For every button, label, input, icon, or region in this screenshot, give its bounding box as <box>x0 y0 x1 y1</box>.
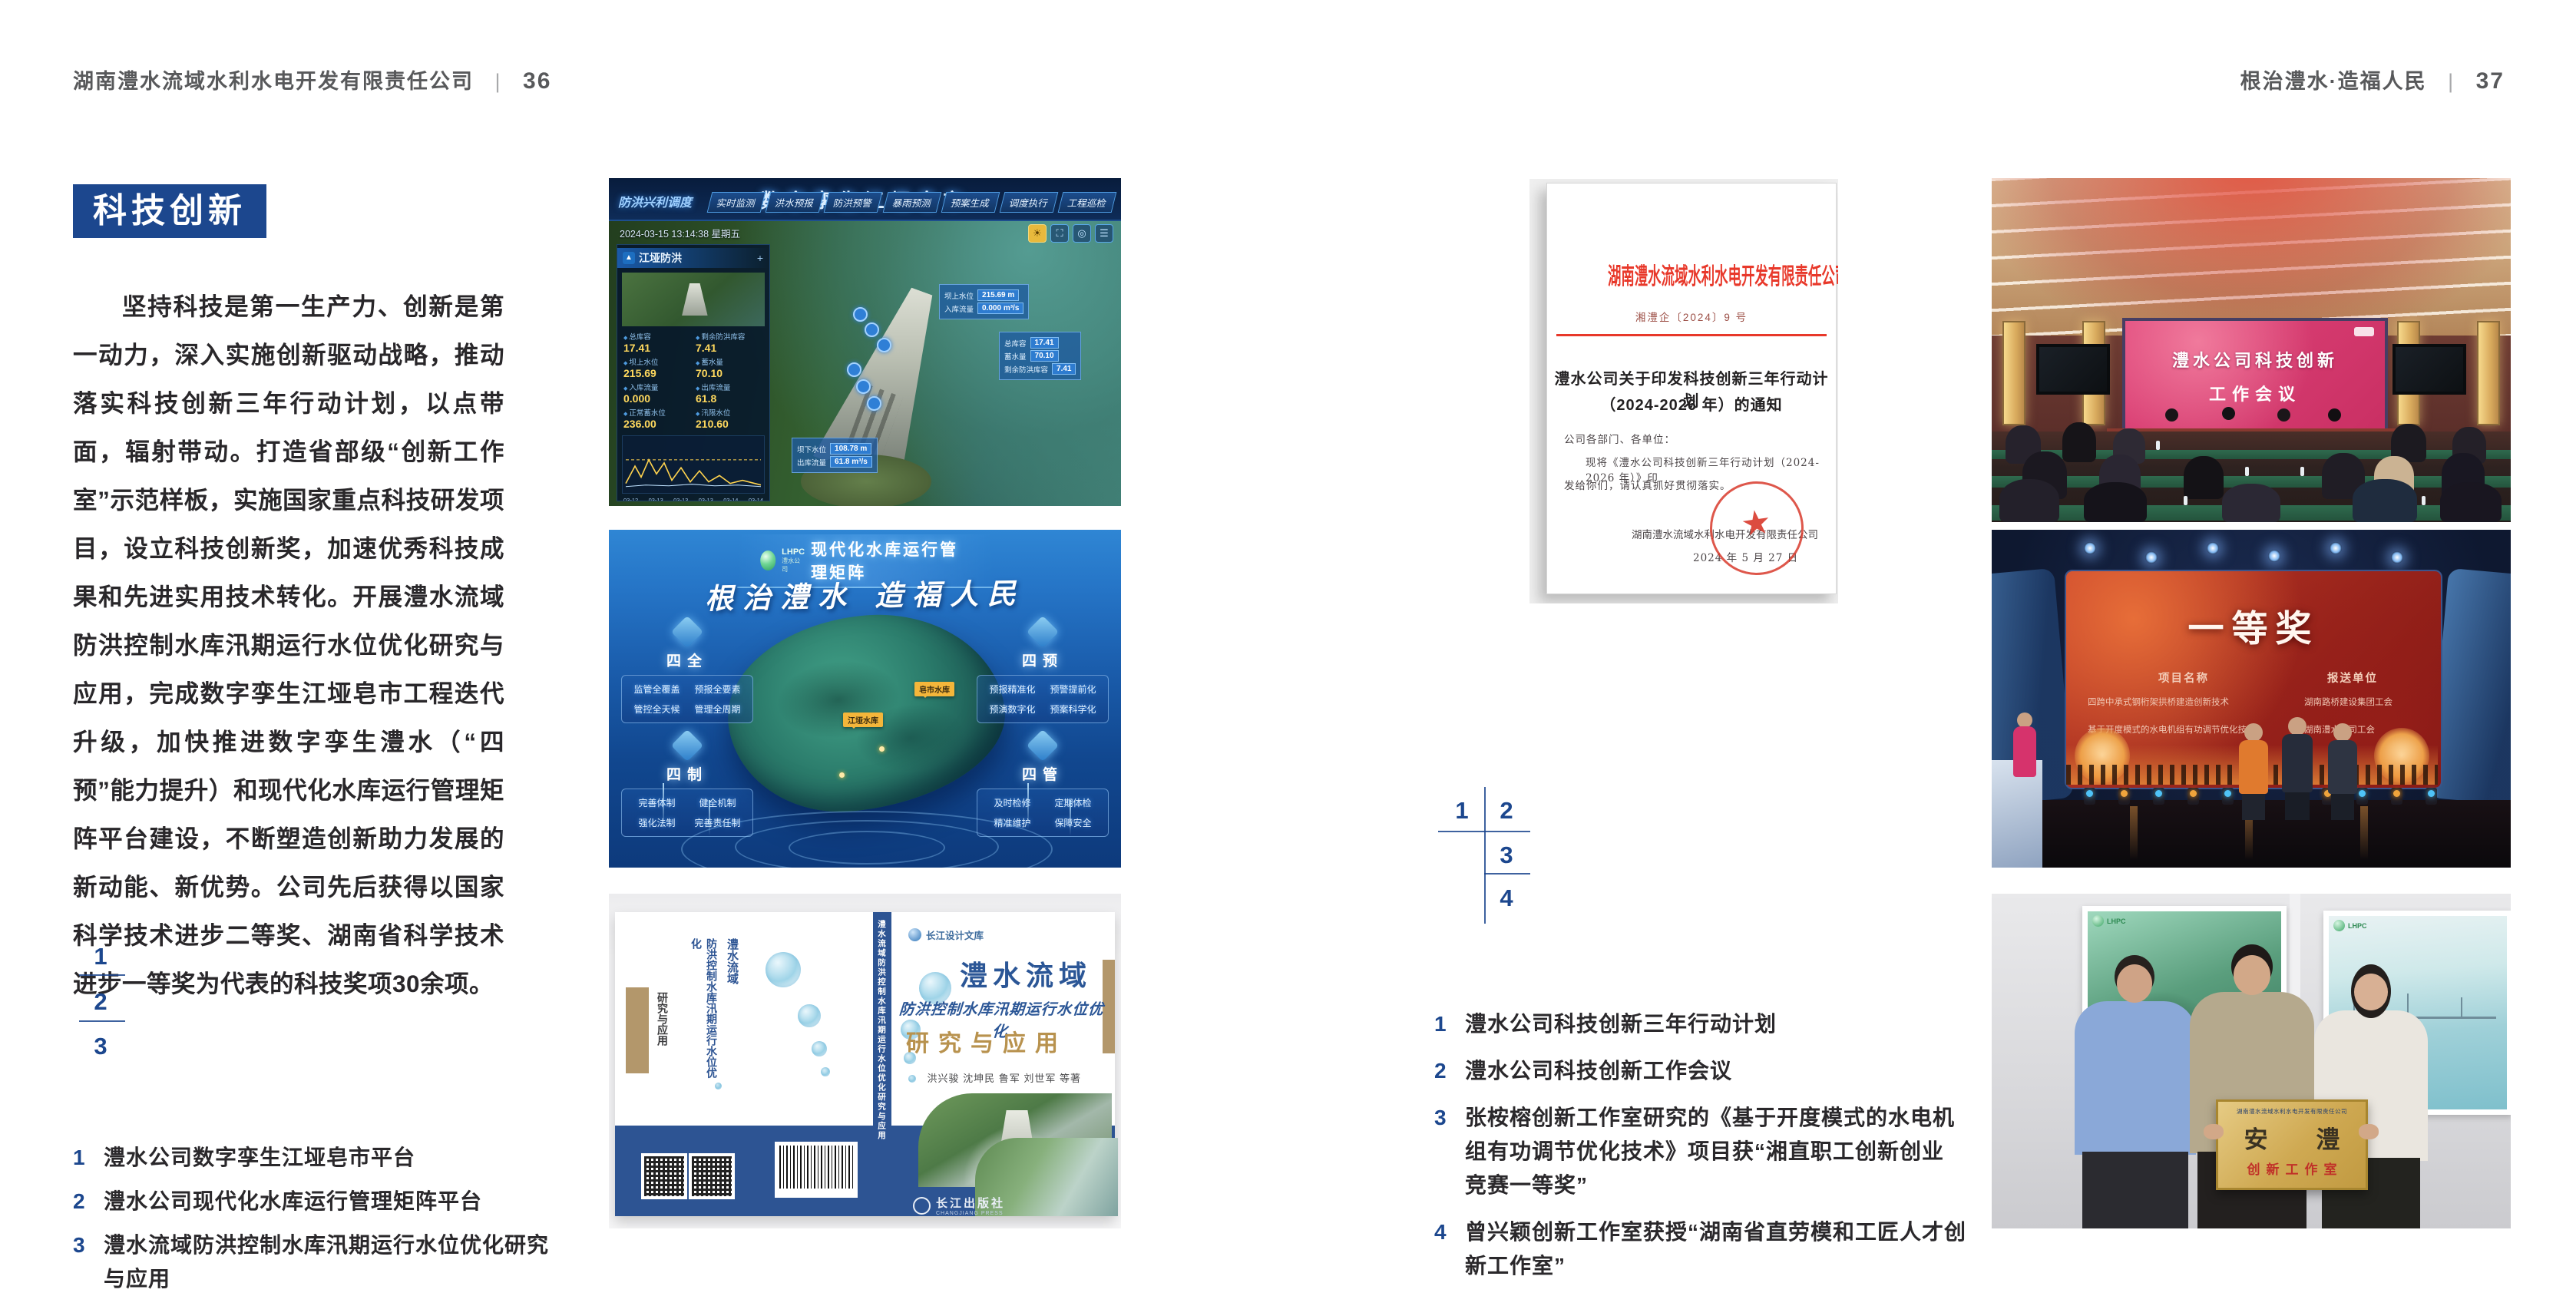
stage-light <box>2330 542 2342 554</box>
wall-light-column <box>2002 321 2025 425</box>
stage-light <box>2207 542 2219 554</box>
series-logo-icon <box>908 928 921 941</box>
caption-row: 2 澧水公司现代化水库运行管理矩阵平台 <box>73 1185 549 1218</box>
index-grid-line <box>1484 873 1530 875</box>
water-bubble <box>812 1041 827 1056</box>
figure-index-4: 4 <box>1491 884 1522 912</box>
water-bubble <box>715 1083 722 1089</box>
floor-light-fixture <box>2426 788 2437 805</box>
caption-row: 1 澧水公司数字孪生江垭皂市平台 <box>73 1141 549 1175</box>
figure-index-2: 2 <box>85 988 116 1016</box>
index-grid-line <box>1438 831 1530 832</box>
callout-value: 61.8 m³/s <box>830 456 872 468</box>
quadrant-siyu: 四预 预报精准化预警提前化 预演数字化预案科学化 <box>977 620 1109 723</box>
light-pillar <box>663 783 664 829</box>
figure-matrix-platform: LHPC 澧水公司 现代化水库运行管理矩阵 根治澧水 造福人民 皂市水库 江垭水… <box>609 530 1121 868</box>
lhpc-logo-icon <box>760 551 775 570</box>
header-divider: | <box>495 70 502 93</box>
poster-logo: LHPC <box>2333 920 2367 931</box>
sensor-marker <box>877 338 891 352</box>
publisher-logo-icon <box>913 1197 931 1215</box>
floor-light-fixture <box>2391 788 2402 805</box>
alarm-icon: ☀ <box>1028 224 1047 243</box>
caption-number: 2 <box>73 1185 104 1218</box>
figure-index-1: 1 <box>1447 797 1477 825</box>
company-name: 湖南澧水流域水利水电开发有限责任公司 <box>73 70 474 93</box>
seal-star-icon: ★ <box>1709 498 1803 549</box>
sensor-marker <box>847 362 861 377</box>
right-captions: 1 澧水公司科技创新三年行动计划 2 澧水公司科技创新工作会议 3 张桉榕创新工… <box>1434 1007 1979 1293</box>
logo-subtext: 澧水公司 <box>782 557 805 574</box>
map-label-jiangya: 江垭水库 <box>843 713 883 727</box>
tab-rain-forecast: 暴雨预测 <box>883 192 942 213</box>
index-divider <box>79 974 125 976</box>
callout-label: 总库容 <box>1004 338 1027 349</box>
stat-item: 汛限水位210.60 <box>696 407 763 430</box>
figure-digital-twin-platform: 坝上水位215.69 m 入库流量0.000 m³/s 总库容17.41 蓄水量… <box>609 178 1121 506</box>
person-torso <box>2075 1001 2196 1155</box>
quadrant-title: 四制 <box>621 763 753 784</box>
tab-dispatch-exec: 调度执行 <box>1000 192 1059 213</box>
callout-label: 剩余防洪库容 <box>1004 364 1048 375</box>
audience-silhouette <box>2222 484 2280 522</box>
sensor-marker <box>865 322 879 337</box>
caption-number: 2 <box>1434 1054 1465 1088</box>
intro-paragraph: 坚持科技是第一生产力、创新是第一动力，深入实施创新驱动战略，推动落实科技创新三年… <box>73 283 504 1008</box>
figure-book-cover: 澧水流域 防洪控制水库汛期运行水位优化 研究与应用 澧水流域防洪控制水库汛期运行… <box>609 894 1121 1228</box>
book-title-line1: 澧水流域 <box>960 954 1092 994</box>
audience-silhouette <box>1999 479 2059 522</box>
qr-code <box>641 1153 687 1199</box>
isbn-barcode <box>775 1142 858 1198</box>
quadrant-title: 四全 <box>621 650 753 670</box>
tab-flood-warning: 防洪预警 <box>824 192 883 213</box>
quadrant-siquan: 四全 监管全覆盖预报全要素 管控全天候管理全周期 <box>621 620 753 723</box>
stage-light <box>2084 542 2096 554</box>
floor-reflection <box>2360 806 2368 860</box>
awardee-orange-silhouette <box>2239 723 2268 820</box>
callout-label: 入库流量 <box>944 303 974 314</box>
sail-icon: ▲ <box>623 252 635 264</box>
person-face <box>2234 955 2270 995</box>
caption-number: 3 <box>73 1228 104 1296</box>
caption-text: 张桉榕创新工作室研究的《基于开度模式的水电机组有功调节优化技术》项目获“湘直职工… <box>1465 1101 1964 1202</box>
water-bubble <box>766 952 801 987</box>
reservoir-capacity-callout: 总库容17.41 蓄水量70.10 剩余防洪库容7.41 <box>999 332 1081 380</box>
water-bubble <box>821 1067 830 1076</box>
sensor-marker <box>856 379 871 394</box>
callout-label: 出库流量 <box>797 457 826 468</box>
flood-stats-grid: 总库容17.41 剩余防洪库容7.41 坝上水位215.69 蓄水量70.10 … <box>617 331 769 432</box>
index-grid-line <box>1484 787 1486 924</box>
tab-realtime-monitor: 实时监测 <box>707 192 766 213</box>
figure-official-document: 湖南澧水流域水利水电开发有限责任公司文件 湘澧企〔2024〕9 号 澧水公司关于… <box>1529 179 1838 603</box>
figure-index-1: 1 <box>85 943 116 970</box>
quadrant-title: 四管 <box>977 763 1109 784</box>
meeting-led-screen: 澧水公司科技创新 工作会议 <box>2122 318 2388 439</box>
quadrant-icon <box>671 729 703 762</box>
lhpc-logo-icon <box>2092 915 2104 927</box>
audience-silhouette <box>2353 479 2417 522</box>
award-col2-header: 报送单位 <box>2327 670 2378 686</box>
plaque-subtitle: 创新工作室 <box>2218 1159 2366 1178</box>
sensor-marker <box>853 307 868 322</box>
back-title-line2: 防洪控制水库汛期运行水位优化 <box>686 938 719 1084</box>
document-page: 湖南澧水流域水利水电开发有限责任公司文件 湘澧企〔2024〕9 号 澧水公司关于… <box>1546 183 1837 594</box>
layers-icon: ⛶ <box>1050 224 1069 243</box>
index-divider <box>79 1020 125 1022</box>
caption-row: 2 澧水公司科技创新工作会议 <box>1434 1054 1979 1088</box>
dashboard-timestamp: 2024-03-15 13:14:38 星期五 <box>620 226 740 240</box>
book-authors: 洪兴骏 沈坤民 鲁军 刘世军 等著 <box>928 1070 1081 1085</box>
left-captions: 1 澧水公司数字孪生江垭皂市平台 2 澧水公司现代化水库运行管理矩阵平台 3 澧… <box>73 1141 549 1306</box>
caption-text: 澧水公司现代化水库运行管理矩阵平台 <box>104 1185 482 1218</box>
page-number-right: 37 <box>2476 68 2505 94</box>
poster-logo-text: LHPC <box>2348 922 2367 930</box>
water-bottle <box>2422 496 2426 505</box>
matrix-slogan: 根治澧水 造福人民 <box>609 568 1121 619</box>
callout-value: 108.78 m <box>830 443 871 455</box>
screen-title-line1: 澧水公司科技创新 <box>2125 347 2385 372</box>
stat-item: 正常蓄水位236.00 <box>623 407 691 430</box>
water-bottle <box>2245 467 2249 476</box>
map-label-zaoshi: 皂市水库 <box>914 682 954 696</box>
section-badge: 科技创新 <box>73 184 266 238</box>
document-red-rule <box>1556 334 1827 336</box>
publisher-name: 长江出版社 <box>936 1195 1005 1211</box>
logo-text: LHPC <box>782 548 805 557</box>
left-tab-group: 实时监测 洪水预报 防洪预警 <box>707 192 882 213</box>
menu-icon: ☰ <box>1095 224 1113 243</box>
stage-light <box>2268 550 2280 562</box>
dam-camera-thumbnail <box>622 273 765 326</box>
right-tab-group: 暴雨预测 预案生成 调度执行 工程巡检 <box>883 192 1116 213</box>
hand <box>2359 1124 2379 1139</box>
page-number-left: 36 <box>523 68 551 94</box>
chart-x-axis-labels: 03-1203-1303-1303-1303-1403-14 <box>617 497 769 501</box>
book-spine: 澧水流域防洪控制水库汛期运行水位优化研究与应用 <box>873 912 891 1216</box>
document-salutation: 公司各部门、各单位： <box>1564 431 1675 446</box>
map-station-dot <box>879 746 885 752</box>
caption-number: 3 <box>1434 1101 1465 1202</box>
caption-row: 3 澧水流域防洪控制水库汛期运行水位优化研究与应用 <box>73 1228 549 1296</box>
flood-panel-header: ▲ 江垭防洪 + <box>617 248 769 268</box>
caption-text: 曾兴颖创新工作室获授“湖南省直劳模和工匠人才创新工作室” <box>1465 1215 1979 1283</box>
hand <box>2204 1124 2224 1139</box>
callout-label: 坝下水位 <box>797 444 826 455</box>
caption-row: 3 张桉榕创新工作室研究的《基于开度模式的水电机组有功调节优化技术》项目获“湘直… <box>1434 1101 1979 1202</box>
callout-value: 17.41 <box>1030 337 1059 349</box>
floor-light-fixture <box>2153 788 2164 805</box>
back-title-line3: 研究与应用 <box>655 992 670 1076</box>
caption-row: 4 曾兴颖创新工作室获授“湖南省直劳模和工匠人才创新工作室” <box>1434 1215 1979 1283</box>
toolbar-icons: ☀ ⛶ ◎ ☰ <box>1028 224 1113 243</box>
expand-icon: + <box>757 248 763 268</box>
stat-item: 总库容17.41 <box>623 331 691 354</box>
back-title-line1: 澧水流域 <box>724 938 740 1115</box>
speaker-head <box>2277 408 2290 422</box>
audience-silhouette <box>2084 482 2147 522</box>
callout-label: 坝上水位 <box>944 290 974 301</box>
caption-text: 澧水公司数字孪生江垭皂市平台 <box>104 1141 415 1175</box>
floor-reflection <box>2130 806 2138 860</box>
screen-logo <box>2354 327 2374 336</box>
ripple-ring <box>789 831 945 865</box>
figure-group-photo: LHPC LHPC <box>1992 894 2511 1228</box>
document-body-line2: 发给你们，请认真抓好贯彻落实。 <box>1564 477 1731 492</box>
award-title: 一等奖 <box>2066 599 2441 652</box>
quadrant-icon <box>671 616 703 648</box>
speaker-head <box>2222 407 2235 420</box>
floor-light-fixture <box>2187 788 2199 805</box>
left-data-panel: ▲ 江垭防洪 + 总库容17.41 剩余防洪库容7.41 坝上水位215.69 … <box>617 244 770 501</box>
flood-panel-title: 江垭防洪 <box>639 252 682 264</box>
caption-number: 1 <box>1434 1007 1465 1041</box>
callout-value: 215.69 m <box>977 289 1019 301</box>
header-divider: | <box>2448 70 2455 93</box>
quadrant-sizhi: 四制 完善体制健全机制 强化法制完善责任制 <box>621 734 753 837</box>
slogan-text: 根治澧水·造福人民 <box>2240 70 2427 93</box>
poster-logo: LHPC <box>2092 915 2126 927</box>
water-bubble <box>908 1075 916 1083</box>
figure-award-ceremony: 一等奖 项目名称 报送单位 四跨中承式钢桁架拱桥建造创新技术 湖南路桥建设集团工… <box>1992 530 2511 868</box>
lhpc-logo-icon <box>2333 920 2345 931</box>
stat-item: 蓄水量70.10 <box>696 356 763 379</box>
floor-light-fixture <box>2084 788 2095 805</box>
downstream-callout: 坝下水位108.78 m 出库流量61.8 m³/s <box>792 438 878 473</box>
sensor-marker <box>867 396 881 411</box>
water-bottle <box>2156 441 2160 450</box>
quadrant-items: 预报精准化预警提前化 预演数字化预案科学化 <box>977 675 1109 723</box>
award-row1-unit: 湖南路桥建设集团工会 <box>2304 696 2392 708</box>
stat-item: 入库流量0.000 <box>623 382 691 405</box>
stat-item: 出库流量61.8 <box>696 382 763 405</box>
audience-silhouette <box>2062 422 2096 462</box>
plaque-main-title: 安 澧 <box>2218 1120 2366 1155</box>
stat-item: 坝上水位215.69 <box>623 356 691 379</box>
water-level-callout: 坝上水位215.69 m 入库流量0.000 m³/s <box>939 284 1029 319</box>
speaker-head <box>2165 408 2178 422</box>
document-red-header: 湖南澧水流域水利水电开发有限责任公司文件 <box>1608 257 1775 291</box>
caption-text: 澧水公司科技创新三年行动计划 <box>1465 1007 1777 1041</box>
awardee-suit-silhouette <box>2328 723 2357 820</box>
audience-silhouette <box>2440 482 2502 522</box>
stat-item: 剩余防洪库容7.41 <box>696 331 763 354</box>
left-page-header: 湖南澧水流域水利水电开发有限责任公司 | 36 <box>73 64 551 94</box>
floor-light-fixture <box>2222 788 2234 805</box>
figure-index-3: 3 <box>85 1033 116 1060</box>
quadrant-icon <box>1027 729 1059 762</box>
person-legs <box>2082 1152 2188 1228</box>
quadrant-items: 监管全覆盖预报全要素 管控全天候管理全周期 <box>621 675 753 723</box>
floor-light-fixture <box>2118 788 2130 805</box>
book-title-line3: 研究与应用 <box>906 1024 1067 1058</box>
series-label: 长江设计文库 <box>908 927 984 942</box>
tab-project-inspect: 工程巡检 <box>1058 192 1117 213</box>
figure-index-3: 3 <box>1491 841 1522 869</box>
water-bottle <box>2300 467 2304 476</box>
light-pillar <box>709 800 710 835</box>
water-bottle <box>2184 496 2187 505</box>
right-page-header: 根治澧水·造福人民 | 37 <box>2240 64 2505 94</box>
series-text: 长江设计文库 <box>926 927 984 942</box>
callout-value: 0.000 m³/s <box>977 303 1023 314</box>
stage-light <box>2145 551 2158 564</box>
document-title-line2: （2024-2026 年）的通知 <box>1547 392 1836 415</box>
publisher-block: 长江出版社 CHANGJIANG PRESS <box>913 1195 1005 1216</box>
map-station-dot <box>839 772 845 778</box>
caption-text: 澧水流域防洪控制水库汛期运行水位优化研究与应用 <box>104 1228 549 1296</box>
figure-index-2: 2 <box>1491 797 1522 825</box>
person-face <box>2117 964 2152 1003</box>
caption-number: 4 <box>1434 1215 1465 1283</box>
innovation-workshop-plaque: 湖南澧水流域水利水电开发有限责任公司 安 澧 创新工作室 <box>2216 1099 2368 1190</box>
book-cover-spread: 澧水流域 防洪控制水库汛期运行水位优化 研究与应用 澧水流域防洪控制水库汛期运行… <box>615 912 1115 1216</box>
document-number: 湘澧企〔2024〕9 号 <box>1547 309 1836 324</box>
callout-label: 蓄水量 <box>1004 351 1027 362</box>
award-col1-header: 项目名称 <box>2158 670 2209 686</box>
light-pillar <box>1027 783 1029 829</box>
plaque-org-line: 湖南澧水流域水利水电开发有限责任公司 <box>2218 1107 2366 1116</box>
publisher-name-en: CHANGJIANG PRESS <box>936 1211 1005 1216</box>
side-tv-screen <box>2392 344 2466 395</box>
qr-code <box>689 1153 735 1199</box>
callout-value: 7.41 <box>1052 363 1076 375</box>
speaker-head <box>2328 408 2341 422</box>
meeting-ceiling <box>1992 178 2511 336</box>
floor-light-fixture <box>2356 788 2368 805</box>
presenter-suit-silhouette <box>2282 717 2313 820</box>
caption-row: 1 澧水公司科技创新三年行动计划 <box>1434 1007 1979 1041</box>
host-silhouette <box>2013 713 2036 777</box>
dispatch-menu-label: 防洪兴利调度 <box>618 192 692 210</box>
water-level-mini-chart <box>622 435 765 494</box>
quadrant-icon <box>1027 616 1059 648</box>
side-tv-screen <box>2036 344 2110 395</box>
back-flap <box>626 987 649 1073</box>
light-pillar <box>1070 800 1071 835</box>
stage-light <box>2391 551 2403 564</box>
person-face <box>2354 974 2388 1010</box>
award-row1-project: 四跨中承式钢桁架拱桥建造创新技术 <box>2088 696 2229 708</box>
caption-number: 1 <box>73 1141 104 1175</box>
poster-logo-text: LHPC <box>2107 918 2126 925</box>
spine-title: 澧水流域防洪控制水库汛期运行水位优化研究与应用 <box>876 920 888 1150</box>
screen-title-line2: 工作会议 <box>2125 381 2385 405</box>
water-bubble <box>798 1004 821 1027</box>
tab-flood-forecast: 洪水预报 <box>766 192 825 213</box>
audience-silhouette <box>2184 456 2224 499</box>
caption-text: 澧水公司科技创新工作会议 <box>1465 1054 1732 1088</box>
wall-light-column <box>2477 321 2500 425</box>
quadrant-title: 四预 <box>977 650 1109 670</box>
tab-plan-generate: 预案生成 <box>941 192 1000 213</box>
figure-meeting-photo: 澧水公司科技创新 工作会议 <box>1992 178 2511 522</box>
magazine-spread: 湖南澧水流域水利水电开发有限责任公司 | 36 科技创新 坚持科技是第一生产力、… <box>0 0 2576 1306</box>
callout-value: 70.10 <box>1030 350 1059 362</box>
locate-icon: ◎ <box>1073 224 1091 243</box>
